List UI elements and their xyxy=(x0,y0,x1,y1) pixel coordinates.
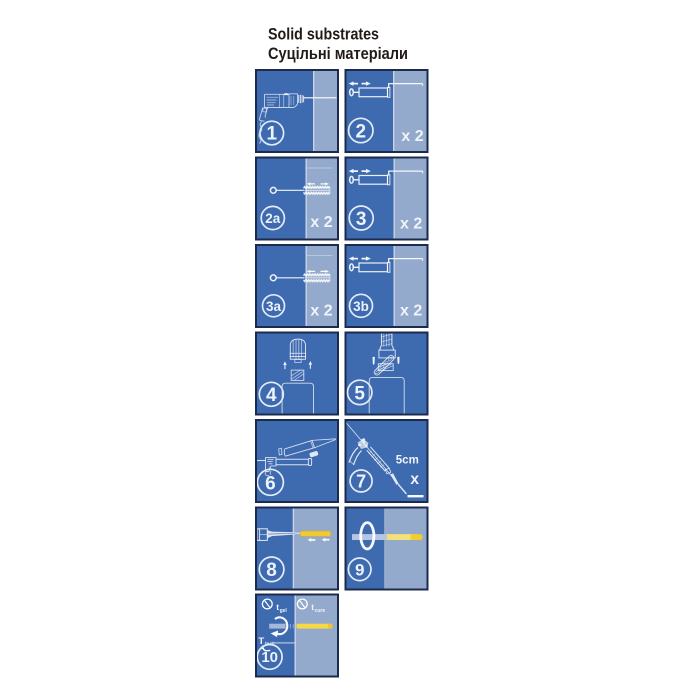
svg-text:4: 4 xyxy=(266,385,277,406)
svg-text:3: 3 xyxy=(356,209,367,230)
svg-text:3b: 3b xyxy=(353,299,369,314)
svg-text:x: x xyxy=(410,471,419,488)
svg-text:2a: 2a xyxy=(265,211,281,226)
svg-text:10: 10 xyxy=(261,649,278,666)
svg-text:x 2: x 2 xyxy=(401,128,423,145)
svg-text:gel: gel xyxy=(280,608,288,614)
svg-text:2: 2 xyxy=(356,121,367,142)
svg-text:5cm: 5cm xyxy=(396,455,419,467)
svg-text:9: 9 xyxy=(355,561,364,580)
svg-text:8: 8 xyxy=(266,560,277,581)
svg-text:x 2: x 2 xyxy=(310,214,332,231)
svg-text:6: 6 xyxy=(265,473,276,494)
svg-text:x 2: x 2 xyxy=(310,303,332,320)
svg-text:5: 5 xyxy=(354,383,365,404)
svg-text:3a: 3a xyxy=(266,299,282,314)
svg-text:7: 7 xyxy=(356,471,366,491)
svg-text:x 2: x 2 xyxy=(400,216,422,233)
svg-text:cure: cure xyxy=(315,608,326,614)
svg-text:x 2: x 2 xyxy=(400,303,422,320)
svg-text:Solid substrates: Solid substrates xyxy=(268,25,379,44)
svg-text:Суцільні матеріали: Суцільні матеріали xyxy=(268,44,408,63)
svg-text:1: 1 xyxy=(267,124,278,145)
